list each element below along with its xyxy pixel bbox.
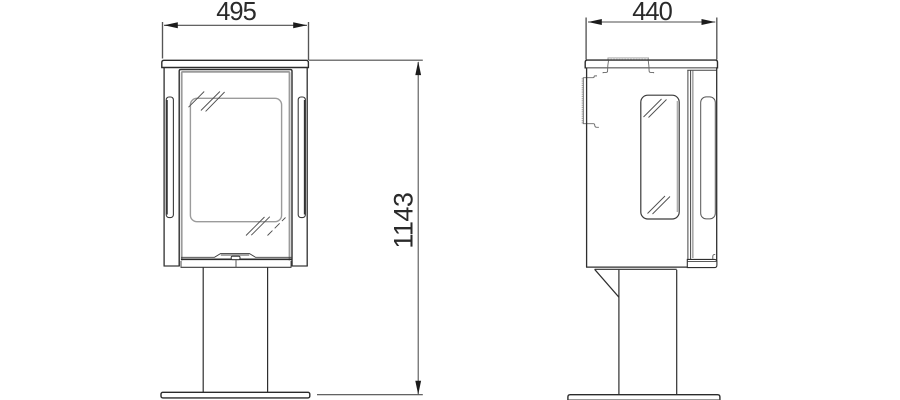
svg-text:440: 440 bbox=[632, 0, 672, 26]
svg-text:495: 495 bbox=[216, 0, 256, 26]
svg-text:1143: 1143 bbox=[389, 193, 419, 249]
